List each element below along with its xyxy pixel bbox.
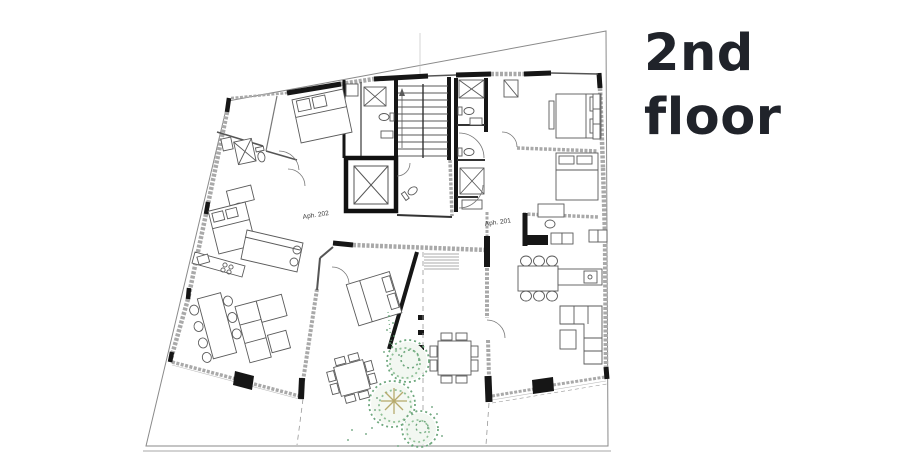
- dining-table: [518, 256, 558, 301]
- title-line-1: 2nd: [644, 22, 781, 86]
- title-line-2: floor: [644, 86, 781, 150]
- page-title: 2nd floor: [644, 22, 781, 150]
- double-bed: [556, 153, 598, 200]
- shower-icon: [460, 168, 484, 194]
- toilet-icon: [379, 113, 394, 121]
- page: Aph. 202 Aph. 201 2nd floor: [0, 0, 900, 462]
- outdoor-table: [324, 350, 380, 406]
- shower-icon: [459, 80, 484, 98]
- toilet-icon: [458, 107, 474, 115]
- kitchen-counter: [192, 252, 245, 277]
- apartment-label-202: Aph. 202: [302, 210, 329, 221]
- outdoor-table: [430, 333, 478, 383]
- terrace-stair-hatch: [424, 254, 459, 269]
- elevator: [346, 158, 396, 211]
- wardrobe-icon: [364, 87, 386, 106]
- toilet-icon: [255, 146, 266, 162]
- staircase: [398, 84, 448, 158]
- double-bed: [346, 272, 402, 326]
- kitchen-island: [241, 230, 303, 272]
- sofa: [560, 306, 602, 364]
- sofa: [235, 294, 296, 362]
- toilet-icon: [458, 148, 474, 156]
- tree-canopy: [402, 411, 438, 447]
- desk: [538, 204, 564, 228]
- kitchen-island: [558, 269, 602, 285]
- kitchen-counter: [525, 230, 607, 245]
- dining-table: [187, 290, 246, 363]
- wardrobe-icon: [504, 80, 518, 97]
- toilet-icon: [401, 185, 419, 201]
